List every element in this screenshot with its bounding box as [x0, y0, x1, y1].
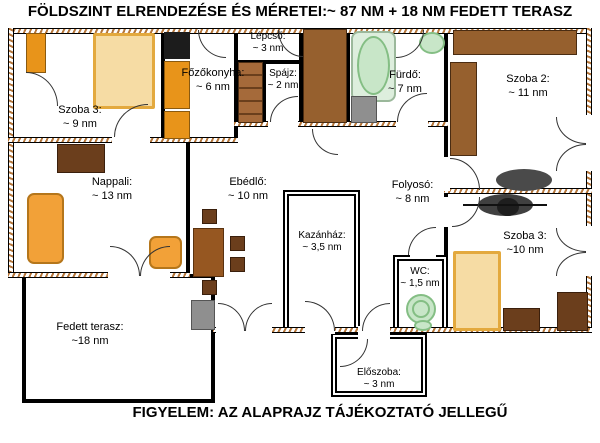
room-label-ebedlo: Ebédlő:~ 10 nm	[198, 175, 298, 203]
room-label-kazanhaz: Kazánház:~ 3,5 nm	[288, 230, 356, 254]
plan-title: FÖLDSZINT ELRENDEZÉSE ÉS MÉRETEI:~ 87 NM…	[0, 3, 600, 20]
toilet-tank	[414, 320, 432, 331]
room-label-terasz: Fedett terasz:~18 nm	[40, 320, 140, 348]
room-label-szoba2: Szoba 2:~ 11 nm	[478, 72, 578, 100]
room-label-fozokonyha: Főzőkonyha:~ 6 nm	[163, 66, 263, 94]
washing-machine	[351, 96, 377, 123]
fridge	[191, 300, 215, 330]
door-gap	[585, 115, 593, 171]
wardrobe	[26, 33, 46, 73]
rug	[496, 169, 552, 191]
wall-left	[8, 28, 14, 278]
floor-plan: FÖLDSZINT ELRENDEZÉSE ÉS MÉRETEI:~ 87 NM…	[0, 0, 600, 443]
bed	[93, 33, 155, 109]
plan-disclaimer: FIGYELEM: AZ ALAPRAJZ TÁJÉKOZTATÓ JELLEG…	[0, 404, 600, 421]
chair	[202, 209, 217, 224]
room-label-wc: WC:~ 1,5 nm	[394, 266, 446, 290]
dining-table	[193, 228, 224, 277]
wall-right	[586, 28, 592, 333]
door-gap	[112, 136, 150, 144]
wardrobe	[450, 62, 477, 156]
room-label-szoba3-bottom: Szoba 3:~10 nm	[475, 229, 575, 257]
room-label-szoba3-top: Szoba 3:~ 9 nm	[30, 103, 130, 131]
chair	[230, 236, 245, 251]
room-label-eloszoba: Előszoba:~ 3 nm	[332, 367, 426, 391]
bed	[453, 251, 501, 331]
dresser	[557, 292, 588, 331]
shelf	[453, 30, 577, 55]
dresser	[503, 308, 540, 331]
kitchen-counter	[164, 111, 190, 139]
tv-cabinet	[57, 144, 105, 173]
room-label-nappali: Nappali:~ 13 nm	[62, 175, 162, 203]
room-label-furdo: Fürdő:~ 7 nm	[360, 68, 450, 96]
room-label-spajz: Spájz:~ 2 nm	[252, 68, 314, 92]
ceiling-fan-hub	[497, 198, 519, 216]
stove	[164, 32, 190, 59]
chair	[202, 280, 217, 295]
room-label-lepcso: Lépcső:~ 3 nm	[232, 31, 304, 55]
toilet-seat	[412, 300, 430, 318]
chair	[230, 257, 245, 272]
room-label-folyoso: Folyosó:~ 8 nm	[365, 178, 460, 206]
sofa	[27, 193, 64, 264]
door-gap	[585, 226, 593, 276]
